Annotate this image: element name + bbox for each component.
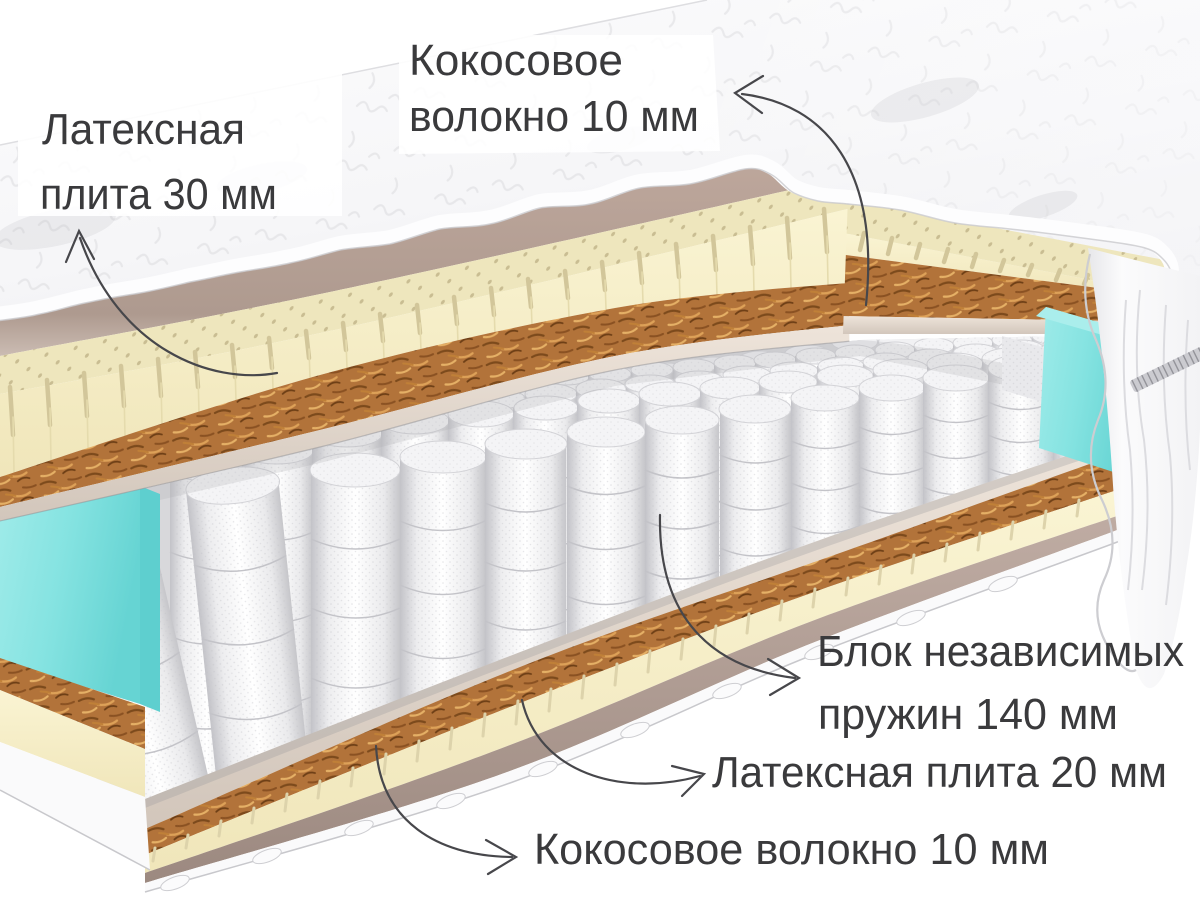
svg-text:Латексная: Латексная (42, 105, 245, 154)
svg-text:плита 30 мм: плита 30 мм (40, 170, 277, 219)
svg-text:Кокосовое волокно 10 мм: Кокосовое волокно 10 мм (534, 825, 1049, 874)
svg-text:волокно 10 мм: волокно 10 мм (409, 92, 699, 141)
svg-text:Латексная плита 20 мм: Латексная плита 20 мм (712, 748, 1167, 797)
svg-text:пружин 140 мм: пружин 140 мм (818, 690, 1118, 739)
svg-text:Блок независимых: Блок независимых (817, 627, 1184, 676)
svg-text:Кокосовое: Кокосовое (409, 36, 623, 85)
